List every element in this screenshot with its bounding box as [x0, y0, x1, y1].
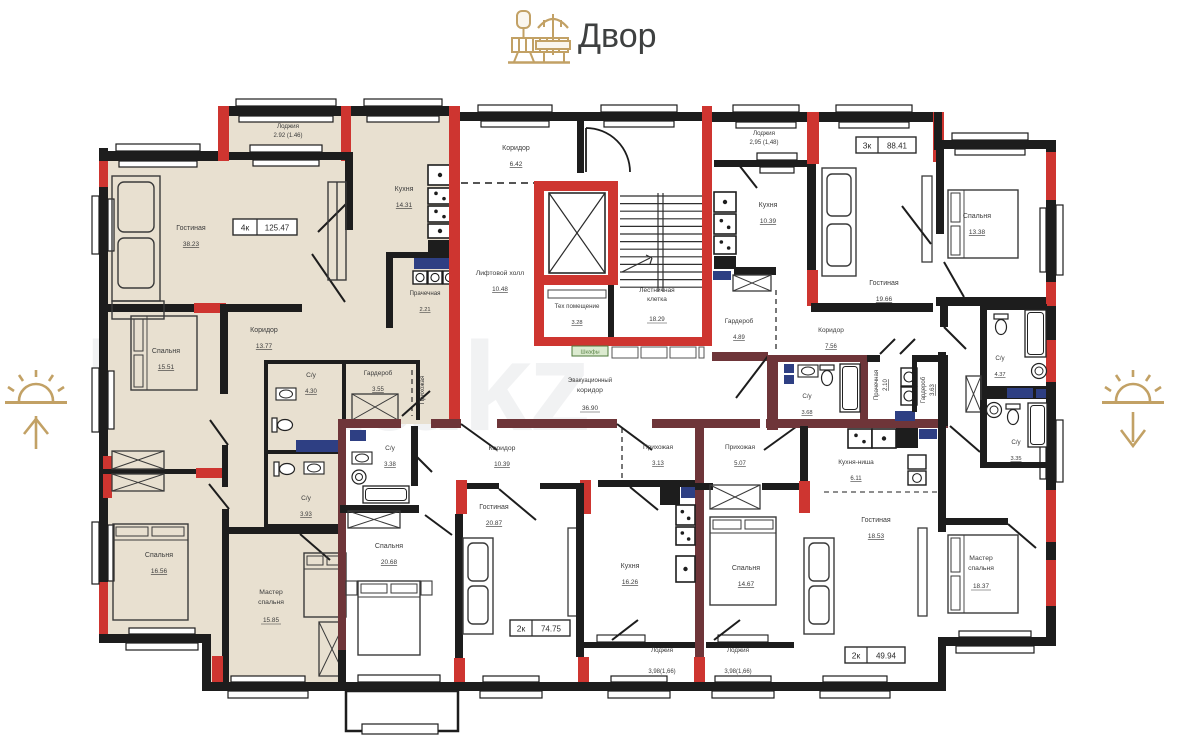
svg-text:Прихожая: Прихожая: [643, 444, 674, 451]
svg-text:Лоджия: Лоджия: [727, 647, 749, 654]
svg-text:3.35: 3.35: [1010, 456, 1021, 462]
svg-text:Спальня: Спальня: [963, 213, 991, 220]
svg-text:Двор: Двор: [578, 17, 657, 55]
svg-text:С/у: С/у: [995, 355, 1005, 362]
svg-text:6.11: 6.11: [850, 476, 862, 482]
svg-text:13.38: 13.38: [969, 229, 986, 236]
svg-text:20.87: 20.87: [486, 520, 503, 527]
svg-text:74.75: 74.75: [541, 625, 562, 634]
svg-text:Лоджия: Лоджия: [753, 130, 775, 137]
svg-text:Эвакуационный: Эвакуационный: [568, 377, 612, 384]
svg-text:Лестничная: Лестничная: [639, 287, 675, 294]
svg-text:Прачечная: Прачечная: [874, 370, 880, 400]
svg-text:3,98(1,66): 3,98(1,66): [724, 669, 751, 675]
svg-text:Гардероб: Гардероб: [364, 369, 393, 377]
svg-text:клетка: клетка: [647, 296, 667, 303]
svg-text:13.77: 13.77: [256, 343, 273, 350]
svg-text:Прихожая: Прихожая: [725, 444, 756, 451]
svg-text:38.23: 38.23: [183, 241, 200, 248]
svg-text:14.67: 14.67: [738, 581, 755, 588]
svg-text:Гостиная: Гостиная: [176, 225, 206, 232]
svg-text:2.21: 2.21: [419, 307, 430, 313]
svg-text:2к: 2к: [852, 651, 861, 661]
svg-text:6.42: 6.42: [510, 161, 523, 168]
svg-text:Спальня: Спальня: [375, 543, 403, 550]
svg-text:Прачечная: Прачечная: [409, 290, 440, 297]
svg-text:Коридор: Коридор: [489, 445, 516, 452]
svg-text:4.89: 4.89: [733, 335, 745, 341]
svg-text:коридор: коридор: [577, 387, 603, 394]
svg-text:Лоджия: Лоджия: [651, 647, 673, 654]
svg-text:7.56: 7.56: [825, 344, 837, 350]
svg-text:Коридор: Коридор: [250, 327, 278, 334]
svg-text:Гардероб: Гардероб: [725, 317, 754, 325]
svg-text:19.66: 19.66: [876, 296, 893, 303]
svg-text:18.53: 18.53: [868, 533, 885, 540]
svg-text:3к: 3к: [863, 141, 872, 151]
svg-text:Кухня: Кухня: [395, 186, 414, 193]
svg-text:С/у: С/у: [385, 445, 396, 452]
svg-text:Лоджия: Лоджия: [277, 123, 299, 130]
svg-text:3.93: 3.93: [300, 512, 312, 518]
svg-text:Шкафы: Шкафы: [580, 350, 599, 356]
svg-text:36.90: 36.90: [582, 405, 598, 412]
svg-text:3.38: 3.38: [384, 462, 396, 468]
svg-text:С/у: С/у: [802, 393, 812, 400]
svg-text:Гардероб: Гардероб: [921, 376, 927, 403]
svg-text:Прихожая: Прихожая: [419, 376, 426, 405]
svg-text:Коридор: Коридор: [818, 327, 844, 334]
svg-text:2.10: 2.10: [883, 379, 889, 391]
svg-text:3.28: 3.28: [571, 320, 582, 326]
svg-text:Гостиная: Гостиная: [479, 504, 509, 511]
svg-text:20.68: 20.68: [381, 559, 398, 566]
svg-text:4.30: 4.30: [305, 389, 317, 395]
svg-text:спальня: спальня: [968, 565, 994, 572]
svg-text:С/у: С/у: [306, 372, 317, 379]
svg-text:Гостиная: Гостиная: [861, 517, 891, 524]
svg-text:Мастер: Мастер: [259, 589, 283, 596]
svg-text:Лифтовой холл: Лифтовой холл: [476, 269, 524, 277]
svg-text:спальня: спальня: [258, 599, 284, 606]
svg-text:88.41: 88.41: [887, 142, 908, 151]
svg-text:18.29: 18.29: [649, 316, 665, 323]
svg-text:10.39: 10.39: [760, 218, 777, 225]
svg-text:3.63: 3.63: [930, 384, 936, 396]
svg-text:125.47: 125.47: [265, 224, 290, 233]
svg-text:Кухня-ниша: Кухня-ниша: [838, 459, 874, 466]
svg-text:Спальня: Спальня: [732, 565, 760, 572]
svg-text:2к: 2к: [517, 624, 526, 634]
svg-text:Гостиная: Гостиная: [869, 280, 899, 287]
svg-text:16.26: 16.26: [622, 579, 639, 586]
svg-text:4к: 4к: [241, 223, 250, 233]
svg-text:3.55: 3.55: [372, 387, 384, 393]
svg-text:3,98(1,66): 3,98(1,66): [648, 669, 675, 675]
svg-text:4.37: 4.37: [994, 372, 1005, 378]
svg-text:49.94: 49.94: [876, 652, 897, 661]
svg-text:3.68: 3.68: [801, 410, 812, 416]
svg-text:10.48: 10.48: [492, 286, 508, 293]
svg-text:18.37: 18.37: [973, 583, 989, 590]
svg-text:14.31: 14.31: [396, 202, 413, 209]
svg-text:10.39: 10.39: [494, 461, 510, 468]
svg-text:2.92 (1.46): 2.92 (1.46): [273, 133, 302, 139]
svg-text:Кухня: Кухня: [621, 563, 640, 570]
svg-text:Кухня: Кухня: [759, 202, 778, 209]
svg-text:С/у: С/у: [301, 495, 312, 502]
svg-text:3.13: 3.13: [652, 461, 664, 467]
svg-text:16.56: 16.56: [151, 568, 168, 575]
svg-text:5.07: 5.07: [734, 461, 746, 467]
svg-text:15.51: 15.51: [158, 364, 175, 371]
svg-text:Спальня: Спальня: [152, 348, 180, 355]
svg-text:Мастер: Мастер: [969, 555, 993, 562]
svg-text:Спальня: Спальня: [145, 552, 173, 559]
svg-text:Коридор: Коридор: [502, 145, 530, 152]
svg-text:Тех помещение: Тех помещение: [555, 303, 600, 310]
svg-text:С/у: С/у: [1011, 439, 1021, 446]
svg-text:2,95 (1,48): 2,95 (1,48): [749, 140, 778, 146]
svg-text:15.85: 15.85: [263, 617, 279, 624]
